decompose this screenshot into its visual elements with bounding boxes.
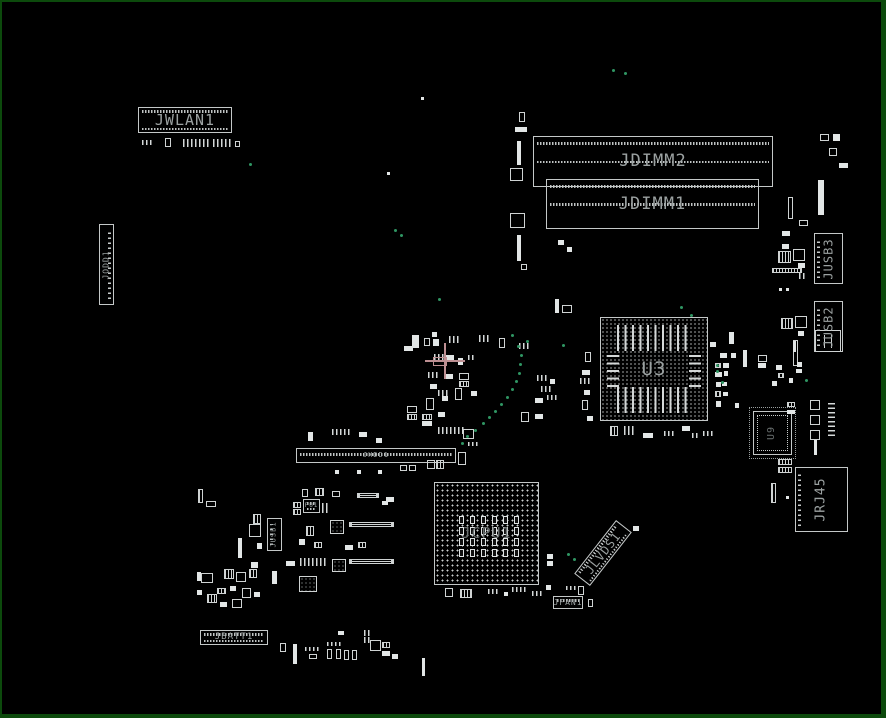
passive-component[interactable]	[426, 398, 434, 410]
passive-component[interactable]	[510, 213, 525, 228]
via-marker	[511, 334, 514, 337]
passive-component[interactable]	[723, 363, 729, 368]
via-marker	[612, 69, 615, 72]
passive-component[interactable]	[198, 489, 203, 503]
passive-component[interactable]	[682, 426, 690, 431]
passive-component[interactable]	[224, 569, 234, 579]
passive-component[interactable]	[799, 220, 808, 226]
passive-component[interactable]	[293, 509, 301, 515]
passive-component[interactable]	[338, 631, 344, 635]
passive-component[interactable]	[585, 352, 591, 362]
bga-pad	[481, 516, 486, 524]
passive-component[interactable]	[771, 483, 776, 503]
via-marker	[515, 380, 518, 383]
passive-component[interactable]	[664, 431, 676, 436]
via-marker	[466, 435, 469, 438]
bga-pad	[514, 527, 519, 535]
passive-component[interactable]	[206, 501, 216, 507]
passive-component[interactable]	[547, 554, 553, 559]
bga-pad	[492, 549, 497, 557]
bga-pad	[514, 516, 519, 524]
passive-component[interactable]	[412, 335, 419, 348]
passive-component[interactable]	[382, 642, 390, 648]
passive-component[interactable]	[254, 592, 260, 597]
passive-component[interactable]	[293, 644, 297, 664]
via-marker	[690, 314, 693, 317]
passive-component[interactable]	[272, 571, 277, 584]
via-marker	[249, 163, 252, 166]
passive-component[interactable]	[558, 240, 564, 245]
via-marker	[716, 364, 719, 367]
passive-component[interactable]	[438, 412, 445, 417]
passive-component[interactable]	[833, 134, 840, 141]
via-marker	[624, 72, 627, 75]
passive-component[interactable]	[810, 415, 820, 425]
component-label: PU1	[305, 503, 319, 509]
passive-component[interactable]	[332, 429, 350, 435]
passive-component[interactable]	[798, 331, 804, 336]
passive-component[interactable]	[716, 401, 721, 407]
via-marker	[680, 306, 683, 309]
passive-component[interactable]	[449, 336, 460, 343]
component-label: U3	[642, 360, 667, 379]
passive-component[interactable]	[515, 127, 527, 132]
passive-component[interactable]	[207, 594, 217, 603]
passive-component[interactable]	[242, 588, 251, 598]
passive-component[interactable]	[547, 561, 553, 566]
passive-component[interactable]	[232, 599, 242, 608]
bga-pad-stripes	[689, 351, 701, 388]
passive-component[interactable]	[293, 502, 301, 508]
component-label: U9	[767, 426, 777, 440]
pin-row	[550, 185, 755, 188]
passive-component[interactable]	[409, 465, 416, 471]
passive-component[interactable]	[776, 365, 782, 370]
via-marker	[482, 422, 485, 425]
passive-component[interactable]	[197, 590, 202, 595]
passive-component[interactable]	[633, 526, 639, 531]
passive-component[interactable]	[376, 438, 382, 443]
passive-component[interactable]	[778, 467, 792, 473]
passive-component[interactable]	[562, 305, 572, 313]
via-marker	[716, 370, 719, 373]
passive-component[interactable]	[715, 391, 721, 397]
passive-component[interactable]	[345, 545, 353, 550]
passive-component[interactable]	[479, 335, 489, 342]
passive-component[interactable]	[349, 522, 394, 527]
passive-component[interactable]	[299, 539, 305, 545]
component-label: JODD1	[103, 250, 111, 279]
passive-component[interactable]	[703, 431, 713, 436]
component-jlvds1[interactable]: JLVDS1	[574, 520, 632, 586]
passive-component[interactable]	[839, 163, 848, 168]
passive-component[interactable]	[787, 410, 795, 414]
passive-component[interactable]	[305, 647, 321, 651]
via-marker	[721, 381, 724, 384]
passive-component[interactable]	[692, 433, 700, 438]
passive-component[interactable]	[720, 353, 727, 358]
passive-component[interactable]	[781, 318, 793, 329]
passive-component[interactable]	[459, 373, 469, 380]
via-marker	[519, 363, 522, 366]
passive-component[interactable]	[521, 412, 529, 422]
component-label: JUSB1	[271, 521, 278, 547]
passive-component[interactable]	[424, 338, 430, 346]
passive-component[interactable]	[758, 355, 767, 362]
passive-component[interactable]	[249, 524, 261, 537]
passive-component[interactable]	[795, 316, 807, 328]
via-marker	[511, 388, 514, 391]
component-jodd1[interactable]: JODD1	[99, 224, 114, 305]
passive-component[interactable]	[422, 414, 432, 420]
passive-component[interactable]	[610, 426, 618, 436]
passive-component[interactable]	[352, 650, 357, 660]
passive-component[interactable]	[517, 141, 521, 165]
passive-component[interactable]	[335, 470, 339, 474]
passive-component[interactable]	[793, 341, 796, 352]
bga-pad-stripes	[617, 387, 691, 413]
passive-component[interactable]	[213, 139, 233, 147]
passive-component[interactable]	[438, 427, 464, 434]
passive-component[interactable]	[165, 138, 171, 147]
passive-component[interactable]	[460, 589, 472, 598]
component-label: JUSB2	[823, 306, 835, 347]
component-label: JDIMM1	[619, 196, 686, 213]
passive-component[interactable]	[519, 112, 525, 122]
passive-component[interactable]	[349, 559, 394, 564]
passive-component[interactable]	[535, 414, 543, 419]
passive-component[interactable]	[436, 460, 444, 469]
passive-component[interactable]	[332, 559, 346, 572]
pin-column	[798, 473, 801, 526]
selection-crosshair-box	[433, 357, 447, 366]
passive-component[interactable]	[797, 362, 802, 367]
passive-component[interactable]	[624, 426, 634, 435]
passive-component[interactable]	[519, 343, 529, 349]
component-jdimm1[interactable]: JDIMM1	[546, 179, 759, 229]
passive-component[interactable]	[587, 416, 593, 421]
passive-component[interactable]	[422, 421, 432, 426]
passive-component[interactable]	[710, 342, 716, 347]
via-marker	[526, 340, 529, 343]
board-frame: JWLAN1JDIMM2JDIMM1JUSB3JUSB2U3JODD1JHDD1…	[0, 0, 886, 718]
passive-component[interactable]	[428, 372, 440, 378]
component-label: JHDD1	[363, 452, 389, 459]
via-marker	[461, 442, 464, 445]
via-marker	[488, 416, 491, 419]
passive-component[interactable]	[504, 592, 508, 596]
passive-component[interactable]	[322, 503, 328, 513]
via-marker	[562, 344, 565, 347]
passive-component[interactable]	[299, 576, 317, 592]
passive-component[interactable]	[251, 562, 258, 568]
passive-component[interactable]	[358, 542, 366, 548]
via-marker	[517, 345, 520, 348]
passive-component[interactable]	[799, 273, 807, 279]
component-u9[interactable]: U9	[753, 411, 792, 455]
passive-component[interactable]	[357, 470, 361, 474]
passive-component[interactable]	[820, 134, 829, 141]
passive-component[interactable]	[532, 591, 543, 596]
passive-component[interactable]	[567, 247, 572, 252]
passive-component[interactable]	[471, 391, 477, 396]
passive-component[interactable]	[550, 379, 555, 384]
via-marker	[805, 379, 808, 382]
passive-component[interactable]	[446, 374, 453, 379]
passive-component[interactable]	[308, 432, 313, 441]
passive-component[interactable]	[220, 602, 227, 607]
passive-component[interactable]	[344, 650, 349, 660]
passive-component[interactable]	[510, 168, 523, 181]
passive-component[interactable]	[782, 231, 790, 236]
passive-component[interactable]	[537, 375, 547, 381]
passive-component[interactable]	[357, 493, 379, 498]
passive-component[interactable]	[778, 251, 791, 263]
passive-component[interactable]	[488, 589, 498, 594]
passive-component[interactable]	[286, 561, 295, 566]
passive-component[interactable]	[330, 520, 344, 534]
component-u3[interactable]: U3	[600, 317, 708, 421]
passive-component[interactable]	[378, 470, 382, 474]
passive-component[interactable]	[407, 406, 417, 413]
passive-component[interactable]	[643, 433, 653, 438]
passive-component[interactable]	[731, 353, 736, 358]
passive-component[interactable]	[578, 586, 584, 595]
passive-component[interactable]	[499, 338, 505, 348]
passive-component[interactable]	[392, 654, 398, 659]
passive-component[interactable]	[236, 572, 246, 582]
passive-component[interactable]	[468, 355, 476, 360]
component-label: JRJ45	[815, 477, 828, 521]
component-pu1[interactable]: PU1	[303, 499, 320, 513]
component-jusb3[interactable]: JUSB3	[814, 233, 843, 284]
passive-component[interactable]	[547, 395, 557, 400]
passive-component[interactable]	[327, 642, 343, 646]
passive-component[interactable]	[810, 400, 820, 410]
passive-component[interactable]	[455, 388, 462, 400]
passive-component[interactable]	[458, 452, 466, 465]
bga-pad	[503, 516, 508, 524]
passive-component[interactable]	[814, 440, 817, 455]
passive-component[interactable]	[314, 542, 322, 548]
passive-component[interactable]	[257, 543, 262, 549]
passive-component[interactable]	[427, 460, 435, 469]
via-marker	[494, 410, 497, 413]
passive-component[interactable]	[735, 403, 739, 408]
passive-component[interactable]	[230, 586, 236, 591]
passive-component[interactable]	[778, 373, 784, 378]
via-marker	[474, 429, 477, 432]
passive-component[interactable]	[183, 139, 209, 147]
passive-component[interactable]	[772, 268, 802, 273]
component-label: JWLAN1	[155, 113, 215, 128]
passive-component[interactable]	[580, 378, 590, 384]
passive-component[interactable]	[818, 180, 824, 215]
passive-component[interactable]	[142, 140, 154, 145]
via-marker	[394, 229, 397, 232]
passive-component[interactable]	[512, 587, 526, 592]
passive-component[interactable]	[723, 392, 728, 396]
passive-component[interactable]	[468, 442, 478, 446]
passive-component[interactable]	[382, 651, 390, 656]
component-jusb1[interactable]: JUSB1	[267, 518, 282, 551]
passive-component[interactable]	[724, 371, 728, 376]
passive-component[interactable]	[359, 432, 367, 437]
passive-component[interactable]	[253, 514, 261, 524]
bga-pad-stripes	[607, 351, 619, 388]
via-marker	[400, 234, 403, 237]
passive-component[interactable]	[588, 599, 593, 607]
passive-component[interactable]	[729, 332, 734, 344]
passive-component[interactable]	[787, 402, 795, 407]
passive-component[interactable]	[370, 640, 381, 651]
passive-component[interactable]	[201, 573, 213, 583]
component-jbatt1[interactable]: JBATT1	[200, 630, 268, 645]
passive-component[interactable]	[555, 299, 559, 313]
passive-component[interactable]	[445, 588, 453, 597]
passive-component[interactable]	[302, 489, 308, 497]
passive-component[interactable]	[521, 264, 527, 270]
passive-component[interactable]	[364, 630, 372, 636]
passive-component[interactable]	[584, 390, 590, 395]
bga-pad	[459, 516, 464, 524]
component-label: JFAN1	[553, 599, 582, 607]
via-marker	[438, 298, 441, 301]
bga-pad	[492, 516, 497, 524]
passive-component[interactable]	[829, 148, 837, 156]
passive-component[interactable]	[336, 649, 341, 659]
component-label: JCPU1	[461, 526, 511, 541]
component-jwlan1[interactable]: JWLAN1	[138, 107, 232, 133]
passive-component[interactable]	[430, 384, 437, 389]
component-label: JDIMM2	[619, 153, 686, 170]
passive-component[interactable]	[582, 370, 590, 375]
component-jfan1[interactable]: JFAN1	[553, 596, 583, 609]
passive-component[interactable]	[810, 430, 820, 440]
passive-component[interactable]	[280, 643, 286, 652]
passive-component[interactable]	[796, 369, 802, 373]
passive-component[interactable]	[421, 97, 424, 100]
pin-row	[537, 142, 769, 145]
passive-component[interactable]	[249, 569, 257, 578]
passive-component[interactable]	[309, 654, 317, 659]
passive-component[interactable]	[743, 350, 747, 367]
passive-component[interactable]	[778, 459, 792, 465]
component-jcpu1[interactable]: JCPU1	[434, 482, 539, 585]
passive-component[interactable]	[404, 346, 413, 351]
passive-component[interactable]	[382, 501, 388, 505]
passive-component[interactable]	[789, 378, 793, 383]
component-jrj45[interactable]: JRJ45	[795, 467, 848, 532]
bga-pad-stripes	[617, 325, 691, 351]
component-label: JBATT1	[215, 633, 254, 642]
passive-component[interactable]	[786, 496, 789, 499]
via-marker	[573, 558, 576, 561]
passive-component[interactable]	[566, 586, 576, 590]
passive-component[interactable]	[235, 141, 240, 147]
passive-component[interactable]	[306, 526, 314, 536]
passive-component[interactable]	[433, 339, 439, 346]
passive-component[interactable]	[407, 414, 417, 420]
passive-component[interactable]	[442, 396, 448, 401]
passive-component[interactable]	[517, 235, 521, 261]
passive-component[interactable]	[432, 332, 437, 337]
via-marker	[567, 553, 570, 556]
bga-pad	[470, 516, 475, 524]
passive-component[interactable]	[217, 588, 226, 594]
via-marker	[506, 396, 509, 399]
passive-component[interactable]	[422, 658, 425, 676]
passive-component[interactable]	[315, 488, 324, 496]
pin-column	[817, 307, 820, 346]
passive-component[interactable]	[332, 491, 340, 497]
board-canvas[interactable]: JWLAN1JDIMM2JDIMM1JUSB3JUSB2U3JODD1JHDD1…	[2, 2, 881, 714]
bga-pad	[514, 538, 519, 546]
passive-component[interactable]	[387, 172, 390, 175]
component-label: JLVDS1	[583, 530, 623, 576]
passive-component[interactable]	[327, 649, 332, 659]
bga-pad	[503, 549, 508, 557]
bga-pad	[470, 549, 475, 557]
passive-component[interactable]	[788, 197, 793, 219]
via-marker	[500, 403, 503, 406]
passive-component[interactable]	[400, 465, 407, 471]
passive-component[interactable]	[786, 288, 789, 291]
bga-pad	[514, 549, 519, 557]
passive-component[interactable]	[546, 585, 551, 590]
bga-pad	[481, 549, 486, 557]
passive-component[interactable]	[758, 363, 766, 368]
passive-component[interactable]	[582, 400, 588, 410]
via-marker	[518, 372, 521, 375]
passive-component[interactable]	[300, 558, 326, 566]
passive-component[interactable]	[782, 244, 789, 249]
bga-pad	[459, 549, 464, 557]
passive-component[interactable]	[793, 249, 805, 261]
passive-component[interactable]	[828, 402, 835, 436]
component-label: JUSB3	[823, 238, 835, 279]
passive-component[interactable]	[238, 538, 242, 558]
passive-component[interactable]	[779, 288, 782, 291]
via-marker	[520, 354, 523, 357]
passive-component[interactable]	[772, 381, 777, 386]
pin-column	[817, 239, 820, 278]
passive-component[interactable]	[197, 572, 201, 581]
passive-component[interactable]	[541, 386, 551, 392]
passive-component[interactable]	[535, 398, 543, 403]
passive-component[interactable]	[459, 381, 469, 387]
